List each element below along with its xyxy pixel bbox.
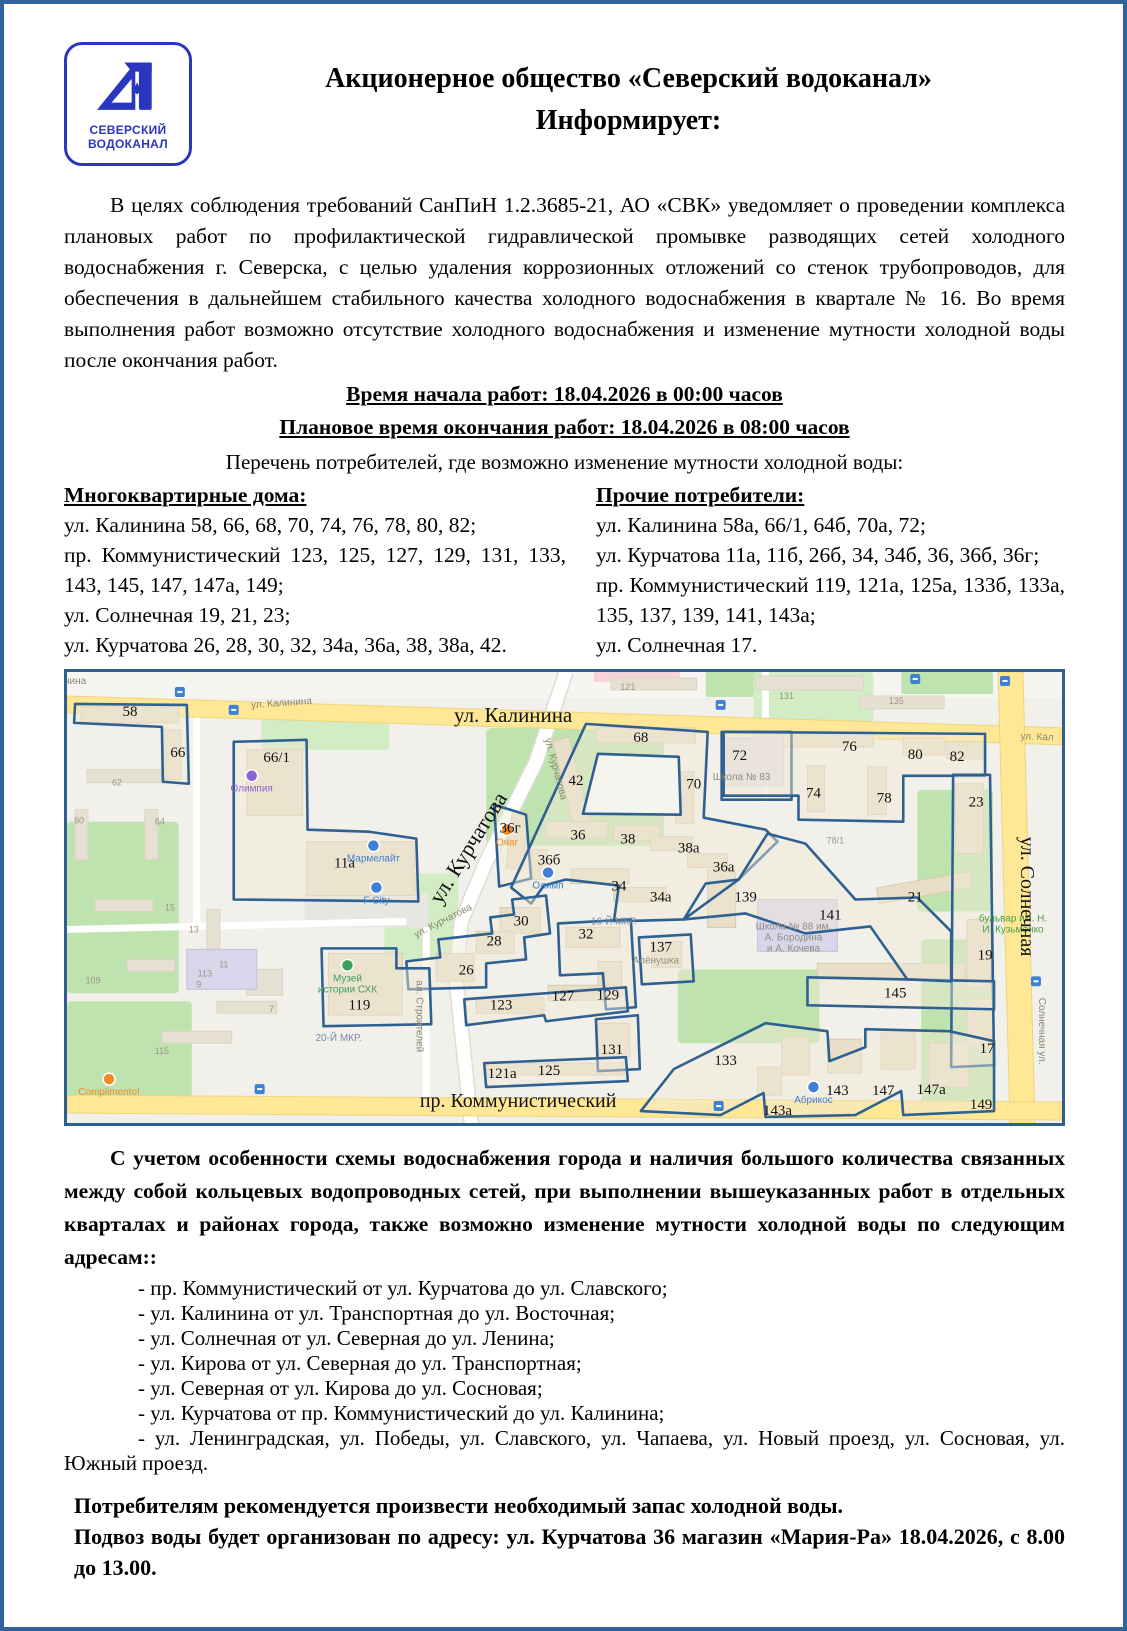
map-house-number: 17: [980, 1041, 995, 1057]
poi-label: Complimento!: [78, 1087, 139, 1098]
map-faint-number: 15: [165, 902, 175, 912]
work-end-time: Плановое время окончания работ: 18.04.20…: [64, 412, 1065, 442]
address-columns: Многоквартирные дома: ул. Калинина 58, 6…: [64, 480, 1065, 660]
apartments-address-line: ул. Солнечная 19, 21, 23;: [64, 600, 566, 630]
map-house-number: 121а: [488, 1066, 517, 1082]
map-house-number: 145: [884, 985, 906, 1001]
others-address-line: пр. Коммунистический 119, 121а, 125а, 13…: [596, 570, 1065, 630]
map-faint-number: 115: [155, 1046, 169, 1056]
map-house-number: 11а: [334, 856, 355, 872]
map-house-number: 131: [601, 1042, 623, 1058]
map-faint-number: 62: [112, 778, 122, 788]
map-house-number: 82: [950, 749, 965, 765]
map-house-number: 74: [806, 786, 821, 802]
affected-street-line: - ул. Северная от ул. Кирова до ул. Сосн…: [64, 1376, 1065, 1401]
map-house-number: 34: [611, 879, 626, 895]
map-house-number: 137: [650, 939, 673, 955]
affected-streets-list: - пр. Коммунистический от ул. Курчатова …: [64, 1276, 1065, 1476]
map-house-number: 72: [732, 748, 747, 764]
map-house-number: 80: [908, 747, 923, 763]
map-poi: Алёнушка: [632, 955, 679, 966]
vodokanal-logo: СЕВЕРСКИЙ ВОДОКАНАЛ: [64, 42, 192, 166]
map-faint-number: 9: [196, 979, 201, 989]
map-house-number: 149: [970, 1097, 992, 1113]
apartments-address-line: пр. Коммунистический 123, 125, 127, 129,…: [64, 540, 566, 600]
poi-dot-icon: [370, 882, 382, 894]
poi-dot-icon: [807, 1081, 819, 1093]
map-house-number: 38а: [678, 841, 700, 857]
map-house-number: 26: [459, 962, 474, 978]
map-house-number: 123: [490, 997, 512, 1013]
map-street-label: ал. Строителей: [413, 980, 424, 1052]
poi-label: Олимп: [532, 881, 563, 892]
map-house-number: 68: [633, 730, 648, 746]
affected-street-line: - ул. Калинина от ул. Транспортная до ул…: [64, 1301, 1065, 1326]
map-house-number: 76: [842, 739, 857, 755]
map-house-number: 21: [908, 889, 923, 905]
map-house-number: 66: [170, 745, 185, 761]
map-house-number: 58: [122, 704, 137, 720]
street-name-label: ул. Солнечная: [1016, 837, 1038, 957]
map-street-label: 20-Й МКР.: [316, 1032, 362, 1044]
map-faint-number: 64: [155, 817, 165, 827]
map-house-number: 127: [552, 988, 575, 1004]
map-house-number: 139: [734, 889, 756, 905]
apartments-column: Многоквартирные дома: ул. Калинина 58, 6…: [64, 480, 566, 660]
others-address-line: ул. Калинина 58а, 66/1, 64б, 70а, 72;: [596, 510, 1065, 540]
street-name-label: пр. Коммунистический: [420, 1090, 617, 1112]
map-faint-number: 13: [189, 924, 199, 934]
map-house-number: 141: [819, 907, 841, 923]
map-faint-number: 78/1: [827, 836, 844, 846]
apartments-heading: Многоквартирные дома:: [64, 480, 566, 510]
apartments-list: ул. Калинина 58, 66, 68, 70, 74, 76, 78,…: [64, 510, 566, 660]
others-heading: Прочие потребители:: [596, 480, 1065, 510]
street-name-label: ул. Калинина: [454, 703, 572, 727]
map-faint-number: 7: [269, 1004, 274, 1014]
poi-dot-icon: [341, 959, 353, 971]
map-house-number: 42: [568, 773, 583, 789]
map-house-number: 38: [620, 832, 635, 848]
poi-label: Олимпия: [231, 784, 273, 795]
map-street-label: ул. Кал: [1020, 731, 1054, 743]
map-poi: Школа № 88 им.А. Бородинаи А. Кочева: [756, 921, 832, 954]
map-faint-number: 135: [889, 696, 904, 706]
poi-dot-icon: [367, 840, 379, 852]
map-house-number: 30: [514, 913, 529, 929]
stock-water-advice: Потребителям рекомендуется произвести не…: [64, 1490, 1065, 1521]
affected-street-line: - ул. Солнечная от ул. Северная до ул. Л…: [64, 1326, 1065, 1351]
map-house-number: 143а: [763, 1103, 792, 1119]
map-house-number: 143: [826, 1083, 848, 1099]
others-list: ул. Калинина 58а, 66/1, 64б, 70а, 72;ул.…: [596, 510, 1065, 660]
map-house-number: 133: [714, 1053, 736, 1069]
map-street-label: 16-Й МКР.: [591, 915, 637, 927]
map-faint-number: 60: [74, 816, 84, 826]
poi-dot-icon: [246, 770, 258, 782]
map-poi: Школа № 83: [713, 772, 771, 783]
apartments-address-line: ул. Курчатова 26, 28, 30, 32, 34а, 36а, …: [64, 630, 566, 660]
title-block: Акционерное общество «Северский водокана…: [192, 34, 1065, 142]
map-house-number: 34а: [650, 889, 672, 905]
map-house-number: 19: [978, 947, 993, 963]
poi-label: F City: [363, 895, 389, 906]
map-house-number: 78: [877, 791, 892, 807]
city-map: 12113113562606478/115131197113109115 Оли…: [64, 669, 1065, 1126]
map-faint-number: 121: [620, 682, 635, 692]
map-faint-number: 109: [86, 975, 101, 985]
map-house-number: 129: [597, 987, 619, 1003]
affected-street-line: - ул. Ленинградская, ул. Победы, ул. Сла…: [64, 1426, 1065, 1476]
map-street-label: нина: [67, 676, 87, 687]
map-house-number: 36а: [713, 860, 735, 876]
map-house-number: 32: [578, 926, 593, 942]
work-start-time: Время начала работ: 18.04.2026 в 00:00 ч…: [64, 379, 1065, 409]
map-house-number: 147а: [917, 1082, 946, 1098]
page-title-line1: Акционерное общество «Северский водокана…: [192, 58, 1065, 100]
map-house-number: 147: [872, 1083, 895, 1099]
affected-street-line: - ул. Кирова от ул. Северная до ул. Тран…: [64, 1351, 1065, 1376]
map-faint-number: 131: [779, 691, 794, 701]
water-drop-logo-icon: [91, 57, 165, 119]
map-house-number: 28: [487, 933, 502, 949]
poi-label: Алёнушка: [632, 955, 679, 966]
map-house-number: 36г: [500, 821, 521, 837]
consumers-list-intro: Перечень потребителей, где возможно изме…: [64, 448, 1065, 476]
page-title-line2: Информирует:: [192, 100, 1065, 142]
poi-label: Школа № 83: [713, 772, 771, 783]
affected-street-line: - пр. Коммунистический от ул. Курчатова …: [64, 1276, 1065, 1301]
poi-label: Очаг: [496, 838, 518, 849]
map-house-number: 119: [349, 997, 371, 1013]
map-street-label: Солнечная ул.: [1036, 998, 1047, 1065]
map-house-number: 66/1: [263, 750, 290, 766]
poi-dot-icon: [103, 1073, 115, 1085]
poi-label: Школа № 88 им.А. Бородинаи А. Кочева: [756, 921, 832, 954]
map-house-number: 23: [969, 795, 984, 811]
map-house-number: 125: [538, 1063, 560, 1079]
header: СЕВЕРСКИЙ ВОДОКАНАЛ Акционерное общество…: [64, 34, 1065, 166]
water-delivery-info: Подвоз воды будет организован по адресу:…: [64, 1521, 1065, 1583]
others-address-line: ул. Курчатова 11а, 11б, 26б, 34, 34б, 36…: [596, 540, 1065, 570]
others-column: Прочие потребители: ул. Калинина 58а, 66…: [566, 480, 1065, 660]
map-faint-number: 11: [219, 959, 228, 969]
affected-street-line: - ул. Курчатова от пр. Коммунистический …: [64, 1401, 1065, 1426]
map-house-number: 36б: [538, 853, 561, 869]
network-note-paragraph: С учетом особенности схемы водоснабжения…: [64, 1142, 1065, 1274]
logo-text-line2: ВОДОКАНАЛ: [88, 137, 168, 151]
others-address-line: ул. Солнечная 17.: [596, 630, 1065, 660]
announcement-page: СЕВЕРСКИЙ ВОДОКАНАЛ Акционерное общество…: [0, 0, 1127, 1631]
intro-paragraph: В целях соблюдения требований СанПиН 1.2…: [64, 190, 1065, 376]
map-house-number: 36: [570, 828, 585, 844]
logo-text-line1: СЕВЕРСКИЙ: [90, 123, 167, 137]
apartments-address-line: ул. Калинина 58, 66, 68, 70, 74, 76, 78,…: [64, 510, 566, 540]
map-house-number: 70: [686, 777, 701, 793]
map-image: 12113113562606478/115131197113109115 Оли…: [67, 672, 1062, 1123]
map-faint-number: 113: [198, 968, 212, 978]
